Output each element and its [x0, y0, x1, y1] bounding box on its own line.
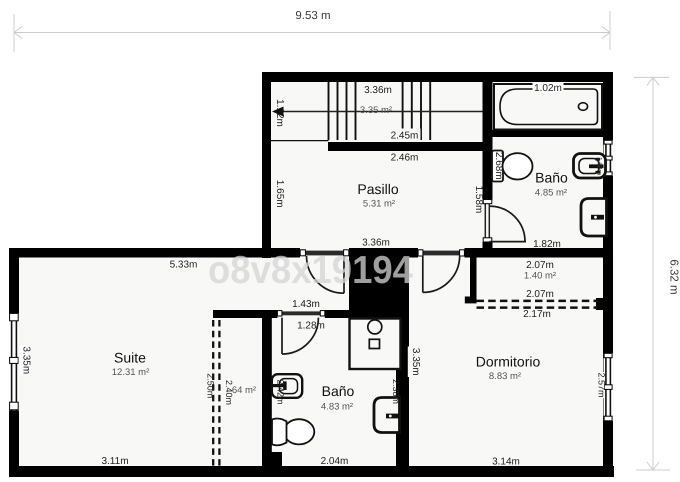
svg-text:12.31 m²: 12.31 m² — [112, 367, 150, 378]
svg-text:3.35 m²: 3.35 m² — [360, 105, 392, 116]
svg-text:8.83 m²: 8.83 m² — [489, 371, 521, 382]
svg-text:2.04m: 2.04m — [321, 456, 349, 467]
svg-text:2.07m: 2.07m — [526, 289, 554, 300]
svg-text:Pasillo: Pasillo — [357, 181, 398, 197]
svg-text:4.85 m²: 4.85 m² — [535, 188, 567, 199]
svg-text:9.53 m: 9.53 m — [295, 10, 330, 22]
svg-text:3.36m: 3.36m — [364, 85, 392, 96]
svg-text:Suite: Suite — [114, 350, 146, 366]
svg-text:5.31 m²: 5.31 m² — [363, 199, 395, 210]
svg-text:2.45m: 2.45m — [391, 130, 419, 141]
svg-text:Baño: Baño — [322, 383, 355, 399]
svg-text:2.46m: 2.46m — [391, 153, 419, 164]
svg-text:2.57m: 2.57m — [597, 372, 607, 397]
svg-text:2.50m: 2.50m — [205, 373, 215, 398]
svg-text:5.33m: 5.33m — [170, 260, 198, 271]
svg-text:3.36m: 3.36m — [362, 238, 390, 249]
svg-text:o8v8x19194: o8v8x19194 — [208, 249, 413, 292]
svg-text:4.83 m²: 4.83 m² — [321, 402, 353, 413]
svg-text:1.40 m²: 1.40 m² — [524, 271, 556, 282]
svg-text:Baño: Baño — [535, 170, 568, 186]
svg-text:1.43m: 1.43m — [292, 299, 320, 310]
svg-text:2.42m: 2.42m — [276, 379, 286, 404]
svg-text:2.38m: 2.38m — [391, 379, 401, 404]
svg-text:2.68m: 2.68m — [493, 152, 504, 180]
svg-text:1.28m: 1.28m — [297, 321, 325, 332]
svg-text:1.68m: 1.68m — [596, 157, 603, 175]
svg-text:Dormitorio: Dormitorio — [476, 354, 541, 370]
svg-text:3.14m: 3.14m — [492, 457, 520, 468]
svg-text:1.65m: 1.65m — [274, 180, 285, 208]
svg-text:3.35m: 3.35m — [410, 348, 421, 376]
svg-text:1.58m: 1.58m — [473, 186, 484, 214]
svg-text:6.32 m: 6.32 m — [668, 259, 680, 294]
svg-text:2.17m: 2.17m — [523, 309, 551, 320]
svg-text:2.07m: 2.07m — [526, 260, 554, 271]
svg-text:3.35m: 3.35m — [21, 346, 32, 374]
svg-text:1.82m: 1.82m — [533, 239, 561, 250]
svg-text:2.40m: 2.40m — [224, 380, 234, 405]
svg-text:3.11m: 3.11m — [101, 456, 128, 467]
svg-text:1.02m: 1.02m — [534, 83, 562, 94]
